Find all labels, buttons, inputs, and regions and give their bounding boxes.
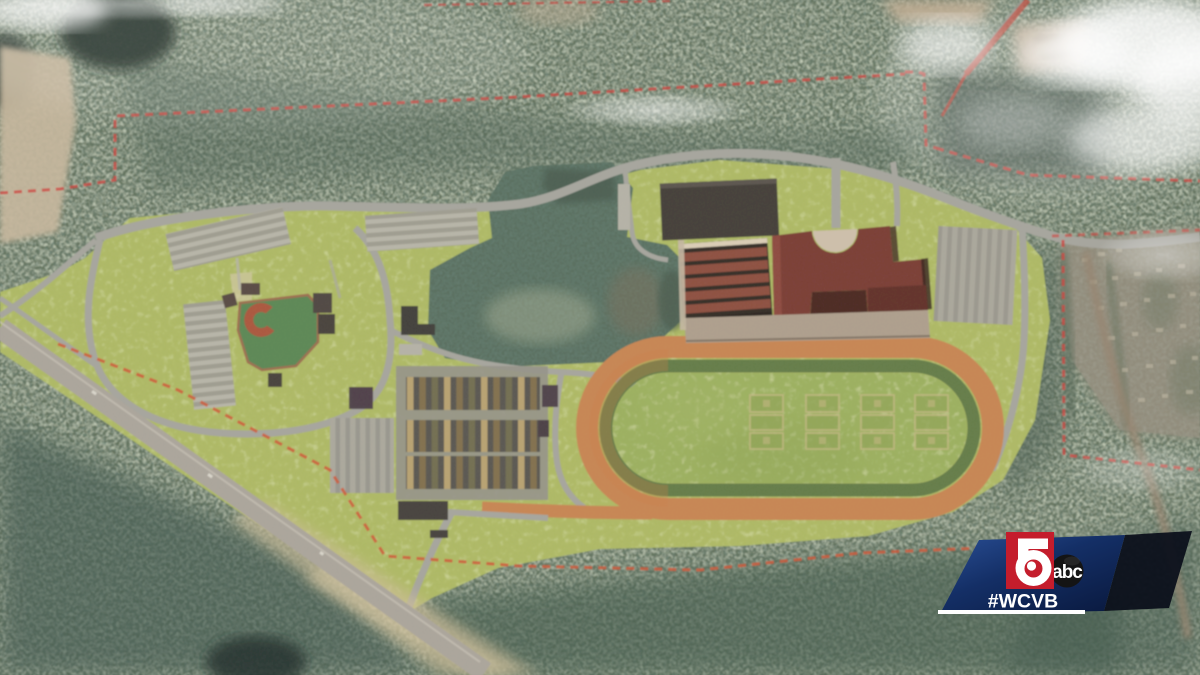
svg-text:#WCVB: #WCVB bbox=[988, 591, 1058, 613]
svg-text:abc: abc bbox=[1052, 562, 1083, 583]
